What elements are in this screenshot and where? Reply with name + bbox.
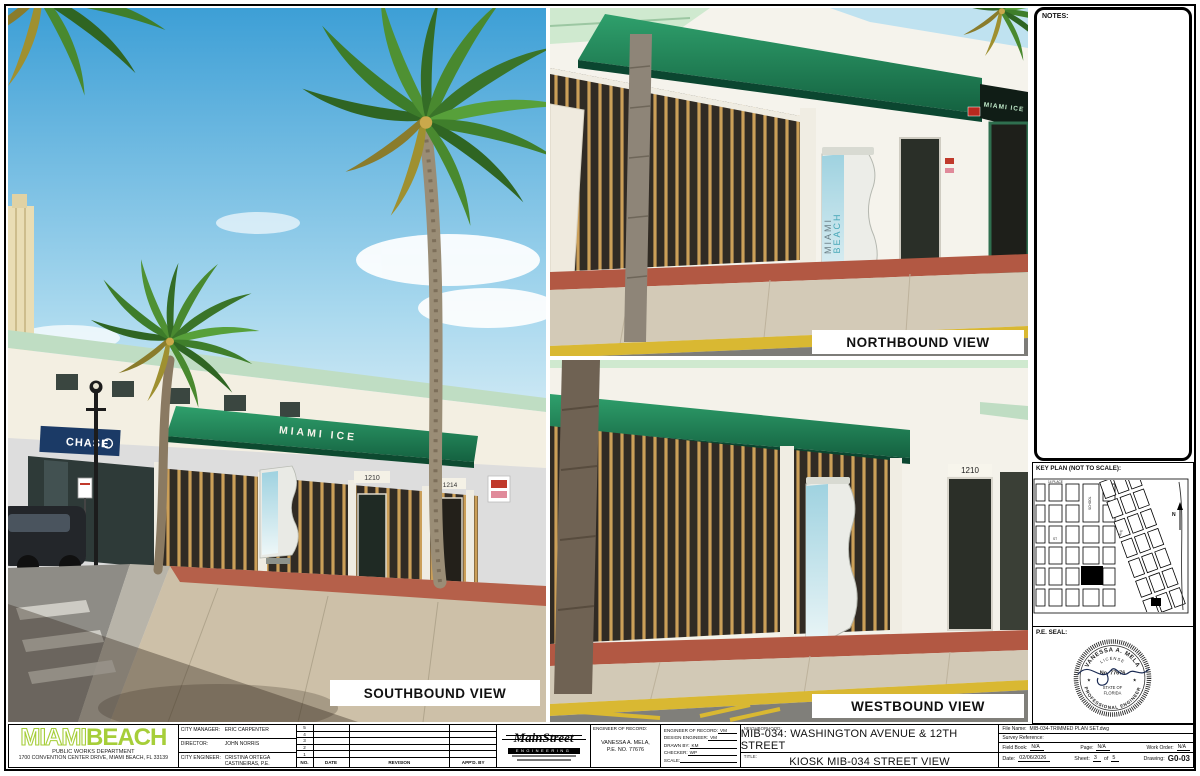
revision-table: 5 4 3 2 1 NO. DATE REVISION APP'D. BY xyxy=(297,725,498,767)
photo-southbound-view: CHASE MIAMI ICE 1210 xyxy=(8,8,546,722)
credit-row: SCALE: xyxy=(664,758,737,763)
photo-northbound-view: MIAMI ICE MIAMI BEACH xyxy=(550,8,1028,356)
consultant-address-line xyxy=(517,759,571,761)
revision-header: NO. xyxy=(297,758,314,767)
official-row: CITY MANAGER: ERIC CARPENTER xyxy=(179,725,296,739)
pe-seal-panel: P.E. SEAL: VANESSA A. MELA LICENSE No. 7… xyxy=(1032,627,1194,724)
officials-cell: CITY MANAGER: ERIC CARPENTER DIRECTOR: J… xyxy=(179,725,297,767)
svg-text:1214: 1214 xyxy=(443,482,458,489)
svg-text:★: ★ xyxy=(1133,678,1138,683)
consultant-address-line xyxy=(512,755,576,757)
credit-row: DRAWN BY:KM xyxy=(664,743,737,749)
credit-row: CHECKER:WP xyxy=(664,750,737,756)
title-block: MIAMIBEACH PUBLIC WORKS DEPARTMENT 1700 … xyxy=(8,724,1194,768)
engineer-of-record-cell: ENGINEER OF RECORD: VANESSA A. MELA, P.E… xyxy=(591,725,661,767)
view-label-southbound: SOUTHBOUND VIEW xyxy=(330,680,540,706)
miami-beach-logo: MIAMIBEACH xyxy=(9,727,178,749)
official-row: CITY ENGINEER: CRISTINA ORTEGA CASTINEIR… xyxy=(179,753,296,767)
revision-row-number: 1 xyxy=(297,751,314,758)
pe-seal-label: P.E. SEAL: xyxy=(1033,627,1193,636)
photo-westbound-view: 1210 xyxy=(550,360,1028,722)
file-name-value: MIB-034-TRIMMED PLAN SET.dwg xyxy=(1030,726,1109,732)
neighborhood-value: MIB-034: WASHINGTON AVENUE & 12TH STREET xyxy=(741,728,999,752)
svg-text:WESTBOUND VIEW: WESTBOUND VIEW xyxy=(851,699,985,714)
palm-trunk xyxy=(554,360,600,694)
revision-header: APP'D. BY xyxy=(450,758,496,767)
official-row: DIRECTOR: JOHN NORRIS xyxy=(179,739,296,753)
svg-text:1210: 1210 xyxy=(961,466,979,475)
sheet-number: 3 xyxy=(1093,755,1101,762)
sheet-title-row: TITLE: KIOSK MIB-034 STREET VIEW xyxy=(741,753,999,767)
survey-row: Survey Reference: xyxy=(999,734,1193,743)
svg-text:STATE OF: STATE OF xyxy=(1103,685,1123,690)
key-plan-title: KEY PLAN (NOT TO SCALE): xyxy=(1033,463,1193,473)
view-label-westbound: WESTBOUND VIEW xyxy=(812,694,1024,718)
svg-text:ST: ST xyxy=(1053,537,1057,541)
kiosk xyxy=(260,466,298,564)
chase-sign: CHASE xyxy=(39,426,120,456)
pe-seal-stamp: VANESSA A. MELA LICENSE No. 77676 ★ ★ ST… xyxy=(1033,636,1192,720)
kiosk xyxy=(806,477,857,652)
date-value: 02/06/2026 xyxy=(1018,755,1050,762)
revision-header: DATE xyxy=(314,758,350,767)
revision-row-number: 2 xyxy=(297,745,314,752)
sheet-title-value: KIOSK MIB-034 STREET VIEW xyxy=(789,756,950,767)
revision-row-number: 5 xyxy=(297,725,314,732)
consultant-subtitle: ENGINEERING xyxy=(508,748,580,754)
svg-text:SOUTHBOUND VIEW: SOUTHBOUND VIEW xyxy=(364,686,507,701)
svg-text:BEACH: BEACH xyxy=(832,212,842,253)
roof-trim xyxy=(550,360,1028,368)
svg-text:SCHOOL: SCHOOL xyxy=(1088,496,1092,510)
agency-address: 1700 CONVENTION CENTER DRIVE, MIAMI BEAC… xyxy=(9,755,178,761)
notes-label: NOTES: xyxy=(1037,10,1189,20)
credit-row: DESIGN ENGINEER:VM xyxy=(664,735,737,741)
sheet-total: 5 xyxy=(1111,755,1119,762)
consultant-logo-cell: MainStreet ENGINEERING xyxy=(497,725,591,767)
file-name-row: File Name: MIB-034-TRIMMED PLAN SET.dwg xyxy=(999,725,1193,734)
svg-text:1210: 1210 xyxy=(364,475,380,482)
svg-text:N: N xyxy=(1172,512,1176,518)
credits-cell: ENGINEER OF RECORD:VM DESIGN ENGINEER:VM… xyxy=(661,725,741,767)
revision-header: REVISION xyxy=(350,758,451,767)
engineer-of-record-name: VANESSA A. MELA, P.E. NO. 77676 xyxy=(593,740,658,753)
key-plan-location-block xyxy=(1081,566,1103,585)
consultant-logo: MainStreet xyxy=(514,731,574,744)
drawing-number: G0-03 xyxy=(1168,754,1190,763)
agency-cell: MIAMIBEACH PUBLIC WORKS DEPARTMENT 1700 … xyxy=(9,725,179,767)
svg-text:NORTHBOUND VIEW: NORTHBOUND VIEW xyxy=(846,335,989,350)
svg-text:★: ★ xyxy=(1087,678,1092,683)
title-cell: NEIGHBORHOOD: MIB-034: WASHINGTON AVENUE… xyxy=(741,725,1000,767)
revision-row-number: 4 xyxy=(297,732,314,739)
meta-cell: File Name: MIB-034-TRIMMED PLAN SET.dwg … xyxy=(999,725,1193,767)
view-label-northbound: NORTHBOUND VIEW xyxy=(812,330,1024,354)
neighborhood-row: NEIGHBORHOOD: MIB-034: WASHINGTON AVENUE… xyxy=(741,725,999,753)
key-plan-map: N 14 PLACE SCHOOL AVE ST xyxy=(1033,473,1189,619)
svg-text:14 PLACE: 14 PLACE xyxy=(1048,480,1063,484)
field-book-row: Field Book:N/A Page:N/A Work Order:N/A xyxy=(999,743,1193,753)
svg-text:LICENSE: LICENSE xyxy=(1099,656,1126,665)
credit-row: ENGINEER OF RECORD:VM xyxy=(664,728,737,734)
drawing-sheet: CHASE MIAMI ICE 1210 xyxy=(0,0,1200,776)
date-sheet-drawing-row: Date:02/06/2026 Sheet: 3 of 5 Drawing: G… xyxy=(999,753,1193,764)
key-plan-panel: KEY PLAN (NOT TO SCALE): xyxy=(1032,462,1194,627)
revision-row-number: 3 xyxy=(297,738,314,745)
svg-text:FLORIDA: FLORIDA xyxy=(1104,690,1122,695)
notes-panel: NOTES: xyxy=(1034,7,1192,461)
